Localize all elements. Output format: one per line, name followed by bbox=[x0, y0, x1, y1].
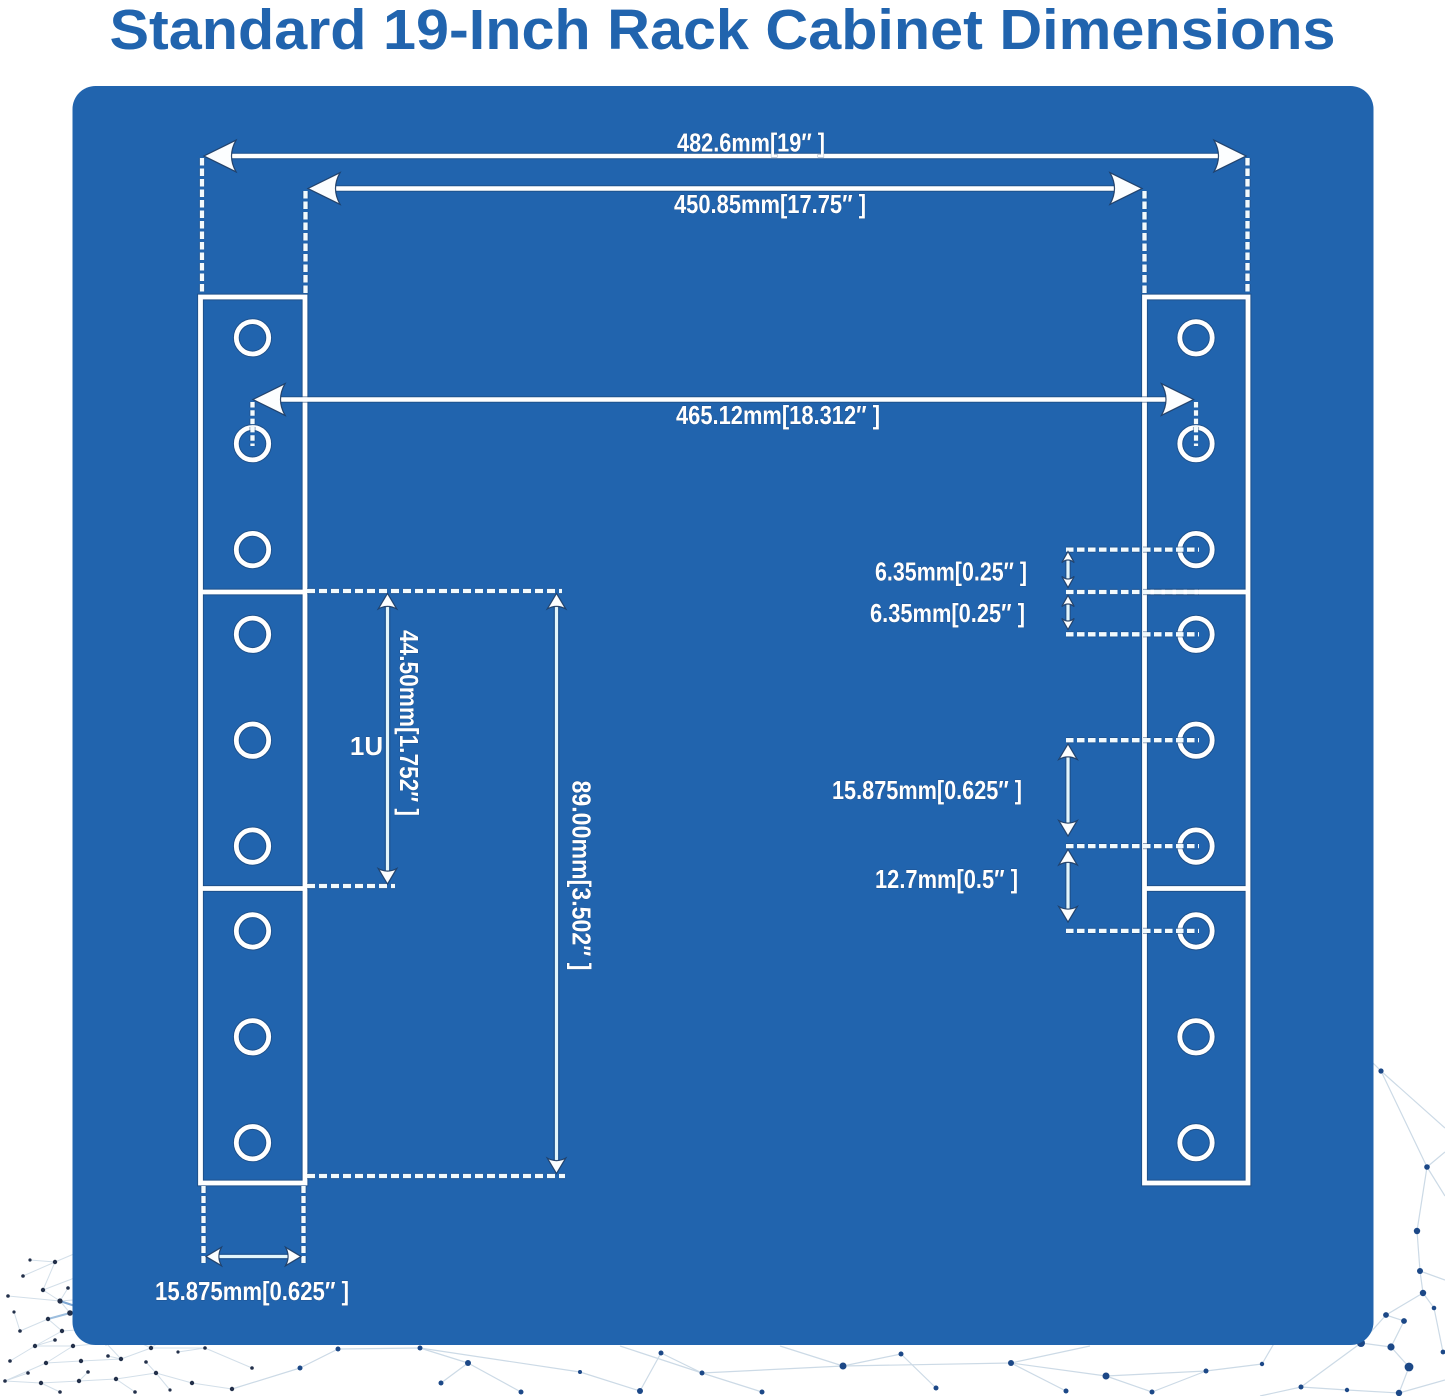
svg-text:Standard 19-Inch Rack Cabinet: Standard 19-Inch Rack Cabinet Dimensions bbox=[110, 0, 1336, 62]
svg-text:15.875mm[0.625″ ]: 15.875mm[0.625″ ] bbox=[155, 1276, 349, 1306]
svg-text:89.00mm[3.502″ ]: 89.00mm[3.502″ ] bbox=[567, 781, 597, 971]
svg-text:1U: 1U bbox=[350, 731, 383, 761]
svg-text:465.12mm[18.312″ ]: 465.12mm[18.312″ ] bbox=[676, 400, 880, 430]
svg-text:15.875mm[0.625″ ]: 15.875mm[0.625″ ] bbox=[832, 775, 1022, 805]
svg-text:450.85mm[17.75″ ]: 450.85mm[17.75″ ] bbox=[674, 189, 866, 219]
svg-text:12.7mm[0.5″ ]: 12.7mm[0.5″ ] bbox=[875, 864, 1018, 894]
svg-text:6.35mm[0.25″ ]: 6.35mm[0.25″ ] bbox=[875, 557, 1027, 587]
svg-text:44.50mm[1.752″ ]: 44.50mm[1.752″ ] bbox=[394, 630, 424, 816]
svg-text:482.6mm[19″ ]: 482.6mm[19″ ] bbox=[677, 128, 825, 158]
svg-text:6.35mm[0.25″ ]: 6.35mm[0.25″ ] bbox=[870, 598, 1025, 628]
